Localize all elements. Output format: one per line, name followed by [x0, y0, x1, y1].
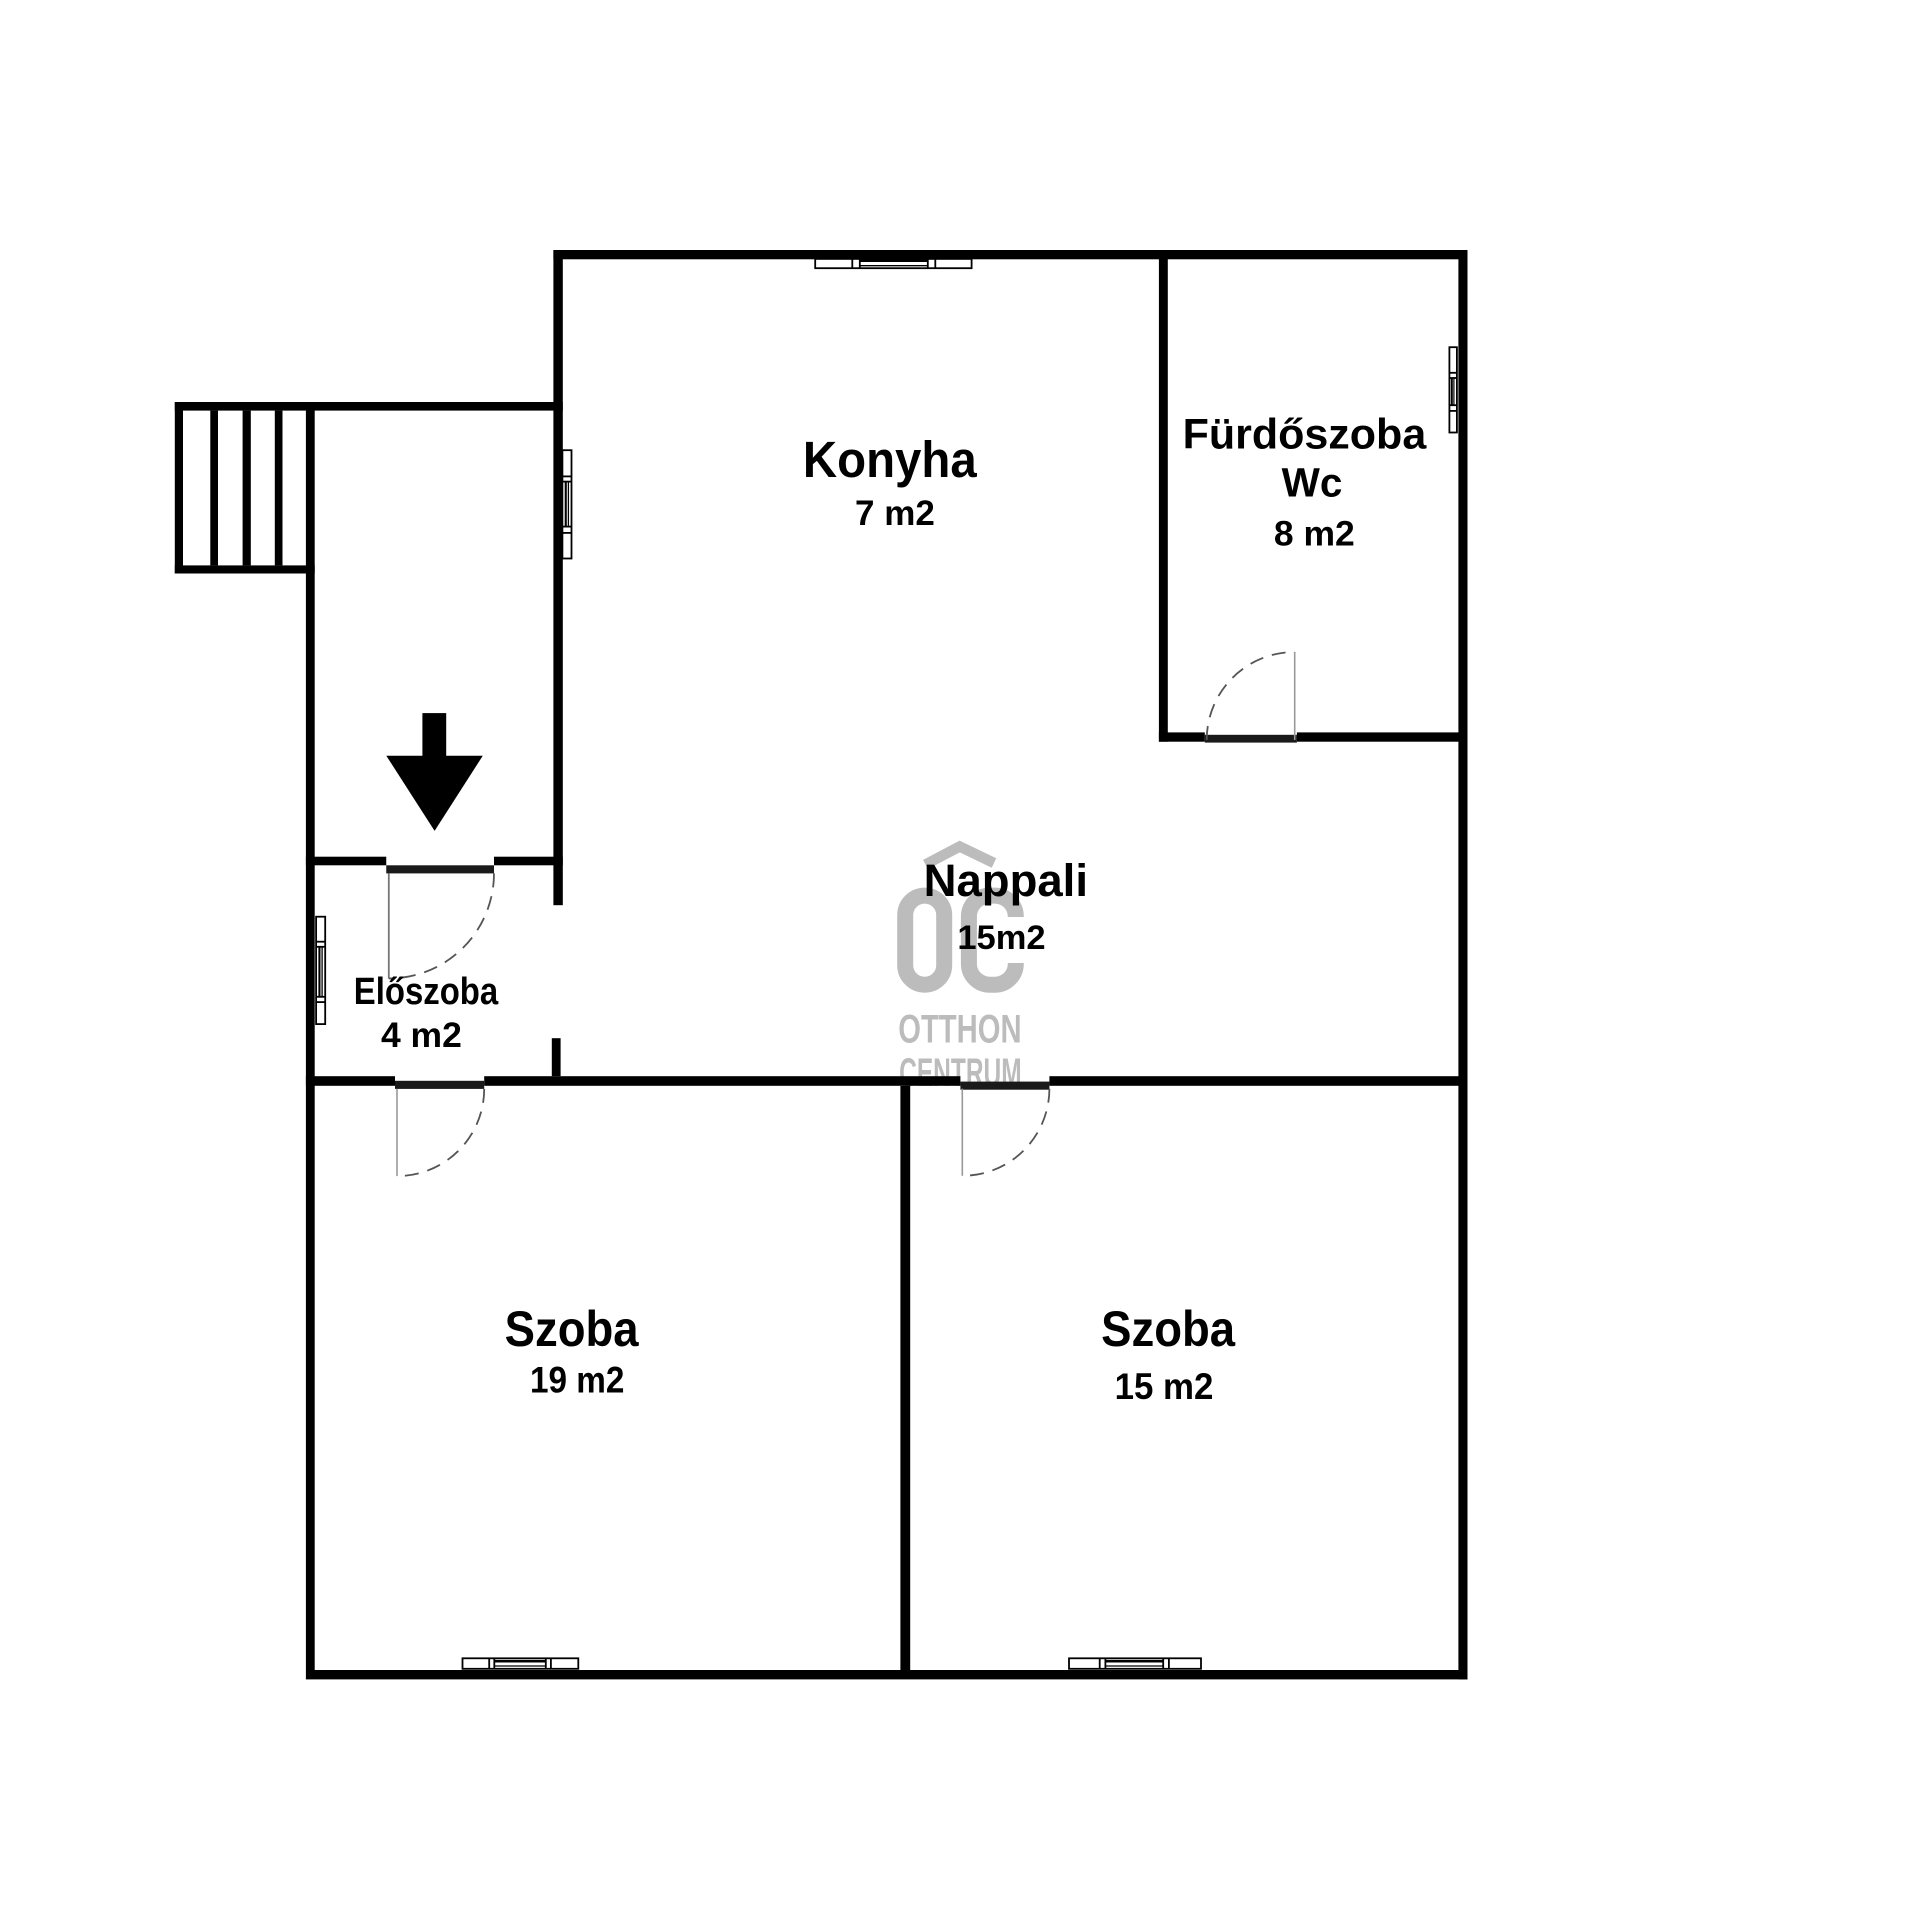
svg-text:8 m2: 8 m2	[1274, 514, 1355, 554]
svg-text:Nappali: Nappali	[924, 855, 1088, 906]
svg-text:Fürdőszoba: Fürdőszoba	[1183, 410, 1428, 458]
svg-text:7 m2: 7 m2	[855, 494, 935, 533]
svg-text:4 m2: 4 m2	[381, 1015, 462, 1055]
svg-text:Szoba: Szoba	[1101, 1302, 1235, 1357]
svg-text:OTTHON: OTTHON	[898, 1007, 1021, 1052]
svg-text:Wc: Wc	[1282, 460, 1343, 506]
svg-text:Előszoba: Előszoba	[354, 969, 499, 1012]
svg-text:Szoba: Szoba	[505, 1302, 639, 1357]
svg-text:19 m2: 19 m2	[530, 1360, 624, 1401]
svg-text:Konyha: Konyha	[803, 432, 977, 489]
svg-text:15m2: 15m2	[957, 919, 1045, 957]
svg-text:15 m2: 15 m2	[1115, 1365, 1214, 1407]
